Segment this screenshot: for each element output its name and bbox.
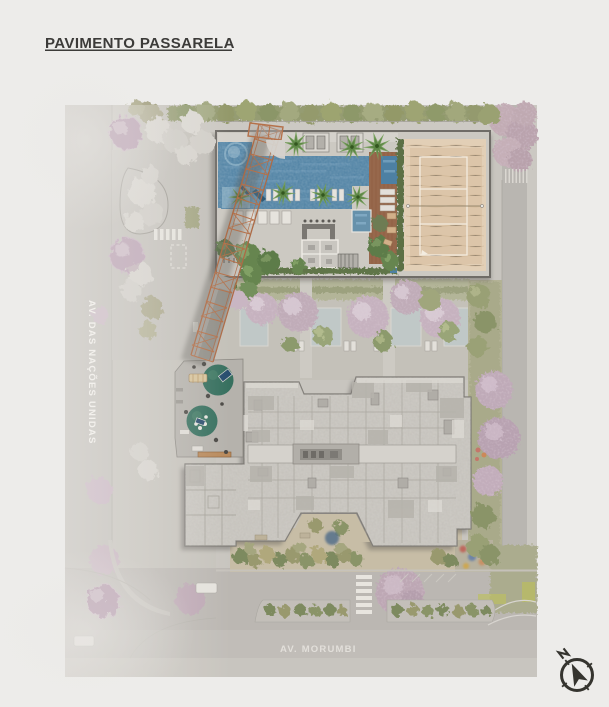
svg-text:PAVIMENTO PASSARELA: PAVIMENTO PASSARELA bbox=[45, 35, 235, 52]
svg-text:AV. DAS NAÇÕES UNIDAS: AV. DAS NAÇÕES UNIDAS bbox=[86, 300, 97, 445]
svg-text:AV. MORUMBI: AV. MORUMBI bbox=[280, 644, 357, 655]
